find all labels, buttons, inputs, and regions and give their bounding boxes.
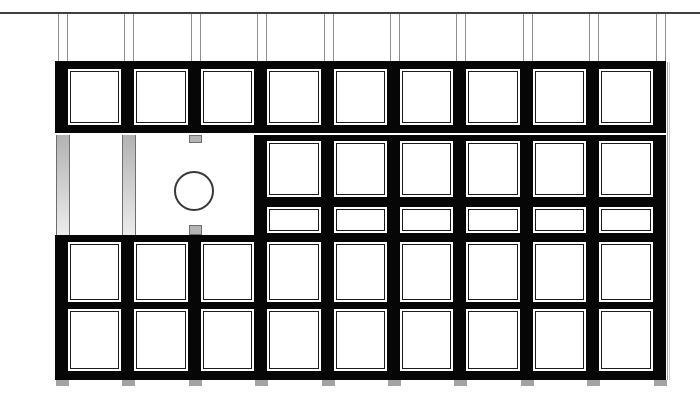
elevation-drawing [0, 0, 700, 416]
row2-tall-panel [334, 141, 387, 197]
guide-line-3 [257, 14, 258, 62]
row2-tall-panel [466, 141, 519, 197]
row2-short-panel [466, 207, 519, 234]
guide-line-7 [523, 14, 524, 62]
row2-tall-panel [267, 141, 320, 197]
guide-line-0 [67, 14, 68, 62]
panel-foot-9 [654, 380, 667, 386]
guide-line-1 [124, 14, 125, 62]
guide-line-5 [390, 14, 391, 62]
row2-short-panel [599, 207, 652, 234]
row4-panel [267, 309, 320, 371]
guide-line-7 [532, 14, 533, 62]
row1-panel [267, 69, 320, 125]
row1-panel [334, 69, 387, 125]
guide-line-4 [333, 14, 334, 62]
guide-line-8 [598, 14, 599, 62]
row4-panel [466, 309, 519, 371]
row1-panel [201, 69, 254, 125]
row2-short-panel [533, 207, 586, 234]
row3-panel [267, 242, 320, 302]
row3-panel [134, 242, 187, 302]
row2-tall-panel [599, 141, 652, 197]
row1-panel [599, 69, 652, 125]
row3-panel [533, 242, 586, 302]
panel-foot-0 [56, 380, 69, 386]
guide-line-6 [456, 14, 457, 62]
guide-line-2 [191, 14, 192, 62]
row1-panel [400, 69, 453, 125]
guide-line-1 [133, 14, 134, 62]
row4-panel [68, 309, 121, 371]
panel-foot-7 [521, 380, 534, 386]
circle-opening [174, 171, 214, 211]
datum-line [0, 12, 700, 14]
row4-panel [201, 309, 254, 371]
row1-panel [134, 69, 187, 125]
row1-panel [533, 69, 586, 125]
row2-short-panel [400, 207, 453, 234]
row2-short-panel [267, 207, 320, 234]
guide-line-4 [324, 14, 325, 62]
panel-foot-2 [189, 380, 202, 386]
guide-line-3 [266, 14, 267, 62]
guide-line-6 [465, 14, 466, 62]
guide-line-8 [589, 14, 590, 62]
connector-tab-1 [189, 225, 202, 236]
guide-line-2 [200, 14, 201, 62]
row2-tall-panel [533, 141, 586, 197]
gray-post [122, 135, 136, 235]
guide-line-5 [399, 14, 400, 62]
row2-tall-panel [400, 141, 453, 197]
panel-foot-6 [454, 380, 467, 386]
guide-line-9 [656, 14, 657, 62]
row4-panel [533, 309, 586, 371]
panel-foot-4 [322, 380, 335, 386]
row4-panel [334, 309, 387, 371]
panel-foot-8 [587, 380, 600, 386]
panel-foot-5 [388, 380, 401, 386]
row3-panel [466, 242, 519, 302]
panel-foot-1 [122, 380, 135, 386]
row1-panel [68, 69, 121, 125]
row1-panel [466, 69, 519, 125]
row3-panel [599, 242, 652, 302]
gray-post [56, 135, 70, 235]
row4-panel [400, 309, 453, 371]
row2-short-panel [334, 207, 387, 234]
edge-shadow-1 [669, 62, 670, 380]
row4-panel [134, 309, 187, 371]
edge-shadow-0 [667, 62, 669, 380]
guide-line-0 [58, 14, 59, 62]
row4-panel [599, 309, 652, 371]
row3-panel [68, 242, 121, 302]
row3-panel [334, 242, 387, 302]
row3-panel [400, 242, 453, 302]
panel-foot-3 [255, 380, 268, 386]
guide-line-9 [665, 14, 666, 62]
connector-tab-0 [189, 135, 202, 143]
row3-panel [201, 242, 254, 302]
